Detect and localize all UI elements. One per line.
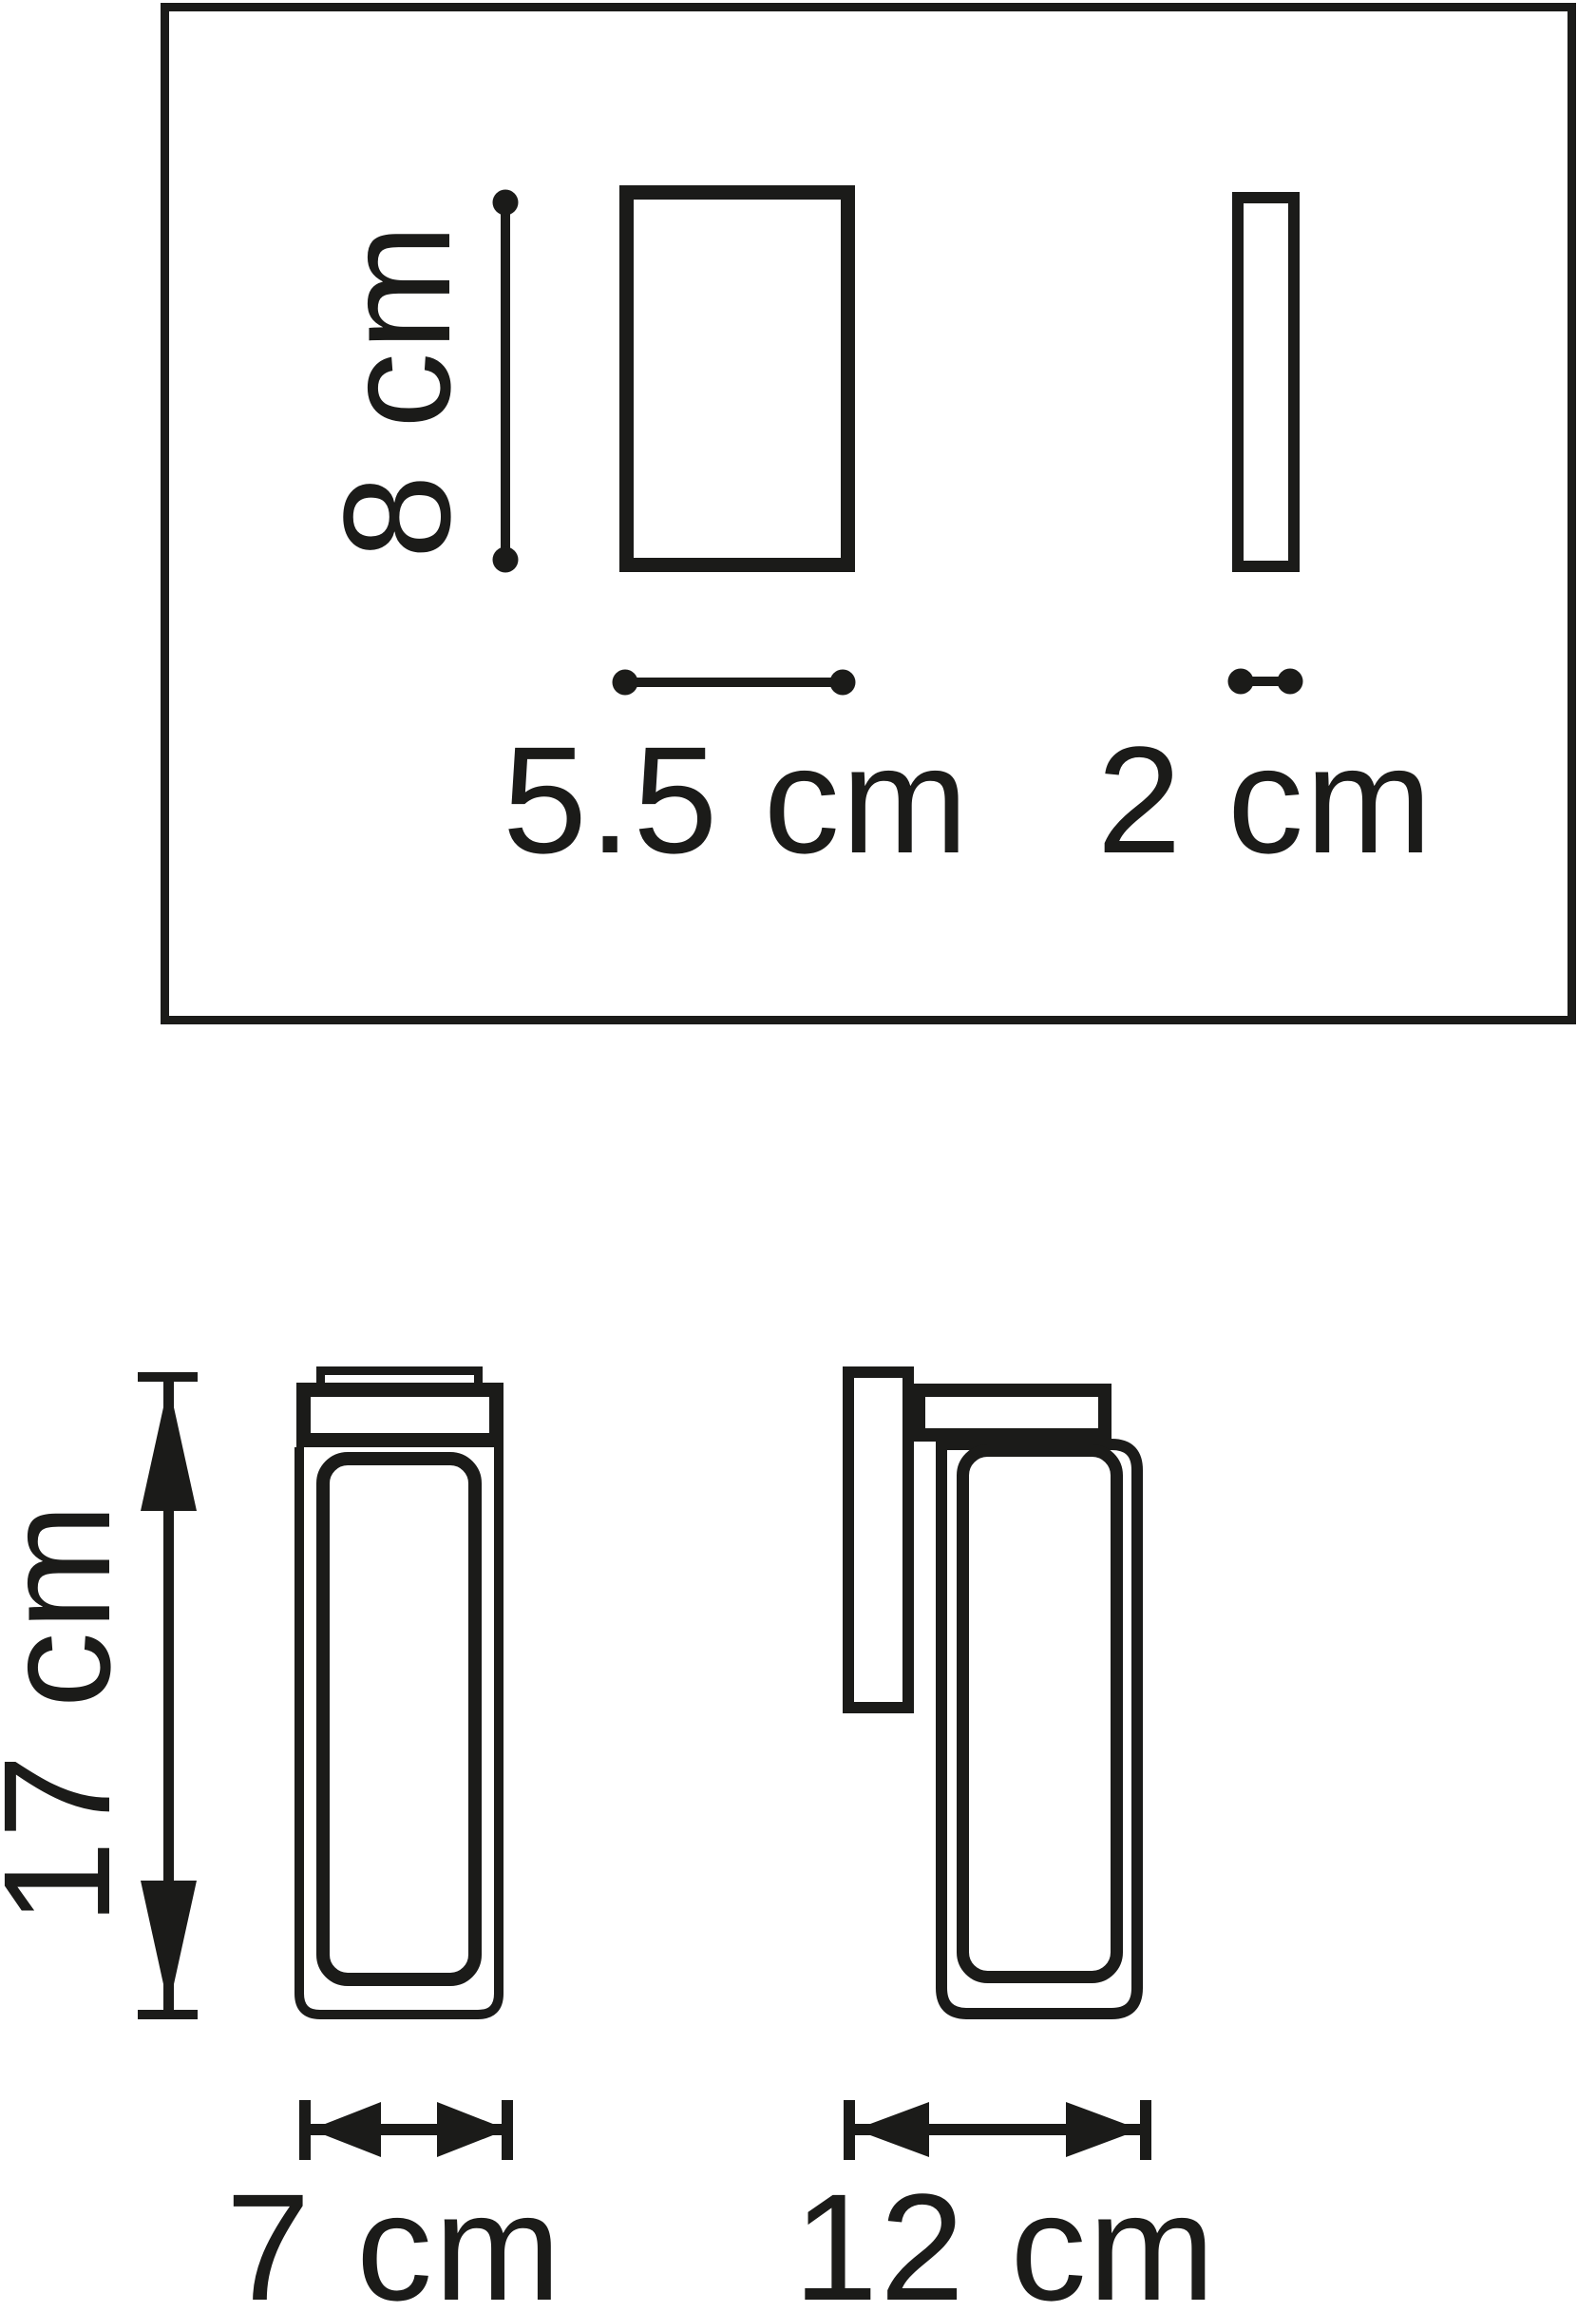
diffuser-outline [323, 1459, 475, 1979]
drawing-front-width-label: 7 cm [62, 2171, 727, 2312]
dimension-dot-icon [613, 670, 638, 696]
arrow-left-icon [855, 2102, 929, 2157]
arrow-up-icon [141, 1384, 197, 1511]
front-silhouette-outline [627, 193, 848, 565]
dimension-dot-icon [830, 670, 856, 696]
top-cap-outline [919, 1390, 1105, 1435]
dimension-dot-icon [493, 547, 519, 573]
dimension-dot-icon [493, 190, 519, 216]
end-bar [138, 1372, 198, 1382]
diagram-drawing [0, 0, 1596, 2312]
front-width-dimension-arrow-line [299, 2100, 513, 2160]
dimension-dot-icon [1228, 669, 1254, 695]
side-depth-dimension-arrow-line [844, 2100, 1151, 2160]
height-dimension-arrow-line [138, 1372, 198, 2019]
width-dimension-line [613, 670, 856, 696]
arrow-left-icon [311, 2102, 381, 2157]
diffuser-outline [963, 1451, 1117, 1978]
arrow-right-icon [437, 2102, 507, 2157]
end-bar [299, 2100, 311, 2160]
lamp-front-view [299, 1371, 499, 2016]
body-outline [941, 1444, 1137, 2014]
height-dimension-line [493, 190, 519, 573]
depth-dimension-line [1228, 669, 1303, 695]
drawing-side-depth-label: 12 cm [673, 2171, 1338, 2312]
drawing-height-label: 17 cm [0, 1381, 133, 2046]
end-bar [138, 2010, 198, 2019]
side-silhouette-outline [1238, 198, 1294, 566]
top-cap-outline [304, 1390, 497, 1441]
wall-bracket-outline [848, 1372, 908, 1708]
spec-depth-label: 2 cm [933, 724, 1596, 876]
spec-height-label: 8 cm [321, 58, 473, 723]
lamp-side-view [848, 1372, 1137, 2014]
arrow-right-icon [1066, 2102, 1140, 2157]
dimension-dot-icon [1278, 669, 1303, 695]
arrow-down-icon [141, 1881, 197, 2008]
dimension-diagram: 8 cm 5.5 cm 2 cm 17 cm 7 cm 12 cm [0, 0, 1596, 2312]
